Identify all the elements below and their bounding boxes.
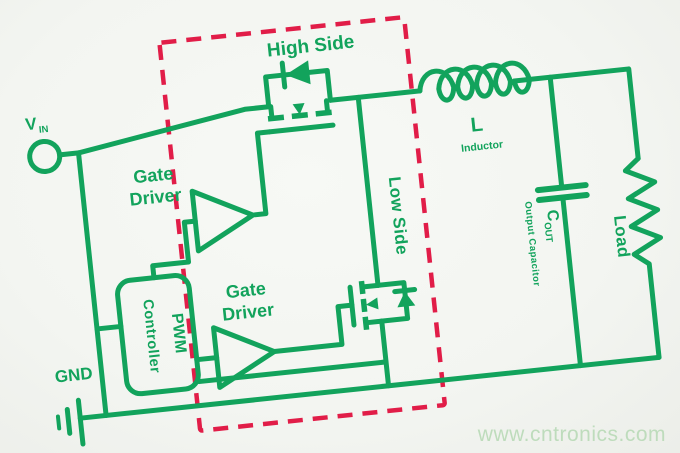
cout-name-label: Output Capacitor <box>522 201 542 287</box>
ls-body-arrow <box>365 297 378 310</box>
circuit-schematic: V IN GND <box>0 0 680 453</box>
pwm-label-line2: Controller <box>139 299 163 375</box>
pwm-ground-wire <box>199 362 386 382</box>
load-zigzag <box>624 157 673 359</box>
pwm-label-line1: PWM <box>168 312 189 354</box>
cout-label-group: C OUT <box>540 209 563 243</box>
gate-driver-bottom-label-2: Driver <box>221 299 275 324</box>
load-label: Load <box>610 214 633 258</box>
vin-label-sub: IN <box>38 124 49 136</box>
vin-terminal: V IN <box>24 112 61 173</box>
gate-driver-bottom-output-wire <box>270 305 356 351</box>
ground-bar-short <box>58 417 59 429</box>
inductor-coil: L Inductor <box>418 61 536 158</box>
inductor-ref-label: L <box>470 114 484 137</box>
cap-top-lead <box>550 77 562 187</box>
top-rail-right <box>514 69 638 171</box>
ls-source-wire <box>382 321 389 386</box>
inductor-name-label: Inductor <box>461 139 504 155</box>
gate-driver-top-label-1: Gate <box>132 163 174 187</box>
ground-bar-mid <box>67 409 70 433</box>
hs-diode-cathode-bar <box>282 63 285 87</box>
pwm-input-wire <box>97 326 121 329</box>
load-resistor: Load <box>604 157 673 361</box>
cap-plate-top <box>538 185 586 190</box>
high-side-mosfet: High Side <box>237 32 371 215</box>
gate-driver-top-amp: Gate Driver <box>126 155 258 279</box>
hs-gate-lead <box>246 132 277 215</box>
gate-driver-bottom-label-1: Gate <box>225 278 267 302</box>
output-capacitor: C OUT Output Capacitor <box>509 75 604 370</box>
gate-driver-bottom-input-wire <box>197 358 217 360</box>
hs-diode-triangle <box>284 60 310 86</box>
ground-symbol: GND <box>53 364 100 447</box>
vin-label: V <box>24 114 38 134</box>
vin-terminal-circle <box>28 140 61 173</box>
top-rail-mid <box>330 91 420 100</box>
high-side-label: High Side <box>266 32 355 62</box>
inductor-winding <box>418 61 531 102</box>
low-side-label: Low Side <box>385 176 412 256</box>
gnd-label: GND <box>54 364 94 387</box>
low-side-mosfet: Low Side <box>339 176 425 389</box>
ground-bar-long <box>78 400 83 444</box>
bottom-rail <box>80 357 659 418</box>
hs-gate-line <box>269 125 333 132</box>
cap-bottom-lead <box>563 198 581 366</box>
switch-node <box>358 97 378 285</box>
buck-converter-schematic: V IN GND <box>0 0 680 453</box>
vin-feed-wire <box>57 107 272 155</box>
ls-diode-cathode-bar <box>395 290 415 292</box>
gate-driver-top-input-wire <box>149 221 201 278</box>
cout-label-sub: OUT <box>541 222 554 243</box>
site-watermark: www.cntronics.com <box>478 423 666 447</box>
gate-driver-top-triangle <box>192 185 256 251</box>
cout-label: C <box>543 209 561 223</box>
